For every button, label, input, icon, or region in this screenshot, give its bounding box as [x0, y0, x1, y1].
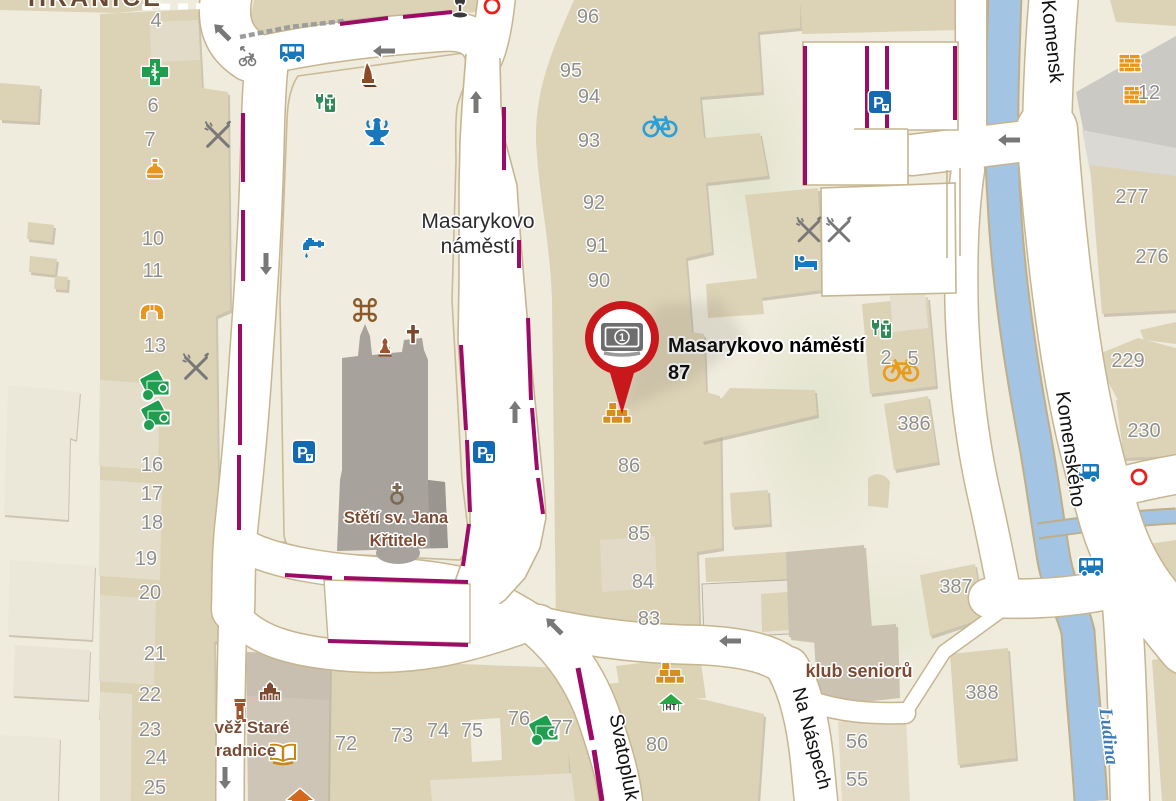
svg-text:95: 95 [560, 60, 582, 82]
svg-text:22: 22 [139, 684, 161, 706]
svg-text:386: 386 [897, 413, 930, 435]
svg-text:16: 16 [141, 454, 163, 476]
svg-text:96: 96 [577, 6, 599, 28]
svg-text:17: 17 [141, 483, 163, 505]
svg-text:277: 277 [1115, 186, 1148, 208]
svg-text:11: 11 [143, 260, 164, 282]
svg-text:13: 13 [144, 335, 166, 357]
svg-text:19: 19 [135, 548, 157, 570]
svg-text:85: 85 [628, 523, 650, 545]
svg-text:20: 20 [139, 582, 161, 604]
svg-text:91: 91 [586, 235, 608, 257]
svg-text:věž Staré: věž Staré [215, 718, 290, 737]
svg-text:56: 56 [846, 731, 868, 753]
svg-text:25: 25 [144, 777, 166, 799]
svg-text:23: 23 [139, 719, 161, 741]
svg-text:72: 72 [335, 733, 357, 755]
svg-text:74: 74 [427, 720, 449, 742]
svg-text:73: 73 [391, 725, 413, 747]
svg-text:klub seniorů: klub seniorů [805, 661, 912, 681]
svg-text:Křtitele: Křtitele [370, 532, 427, 550]
svg-text:94: 94 [578, 86, 600, 108]
svg-text:92: 92 [583, 192, 605, 214]
svg-text:84: 84 [632, 571, 654, 593]
svg-text:HRANICE: HRANICE [28, 0, 163, 12]
svg-text:7: 7 [144, 129, 155, 151]
svg-text:radnice: radnice [216, 741, 276, 760]
svg-text:86: 86 [618, 455, 640, 477]
svg-text:1: 1 [619, 332, 625, 344]
svg-text:276: 276 [1135, 246, 1168, 268]
svg-text:Masarykovo: Masarykovo [421, 210, 534, 233]
svg-text:55: 55 [846, 769, 868, 791]
svg-text:83: 83 [638, 608, 660, 630]
svg-text:387: 387 [939, 576, 972, 598]
svg-text:2: 2 [880, 347, 891, 369]
svg-text:229: 229 [1111, 350, 1144, 372]
svg-text:76: 76 [508, 708, 530, 730]
svg-text:75: 75 [461, 720, 483, 742]
svg-text:80: 80 [646, 734, 668, 756]
svg-text:93: 93 [578, 130, 600, 152]
svg-text:HT: HT [666, 703, 677, 712]
svg-text:77: 77 [551, 717, 573, 739]
svg-text:náměstí: náměstí [441, 235, 516, 258]
svg-text:230: 230 [1127, 420, 1160, 442]
svg-text:90: 90 [588, 270, 610, 292]
svg-text:24: 24 [145, 747, 167, 769]
svg-text:18: 18 [141, 512, 163, 534]
svg-text:4: 4 [150, 10, 161, 32]
svg-text:21: 21 [144, 643, 166, 665]
svg-text:Stětí sv. Jana: Stětí sv. Jana [344, 509, 449, 527]
svg-text:388: 388 [965, 682, 998, 704]
svg-text:12: 12 [1138, 82, 1160, 104]
svg-text:5: 5 [907, 348, 918, 370]
svg-text:6: 6 [147, 95, 158, 117]
svg-text:10: 10 [142, 228, 164, 250]
